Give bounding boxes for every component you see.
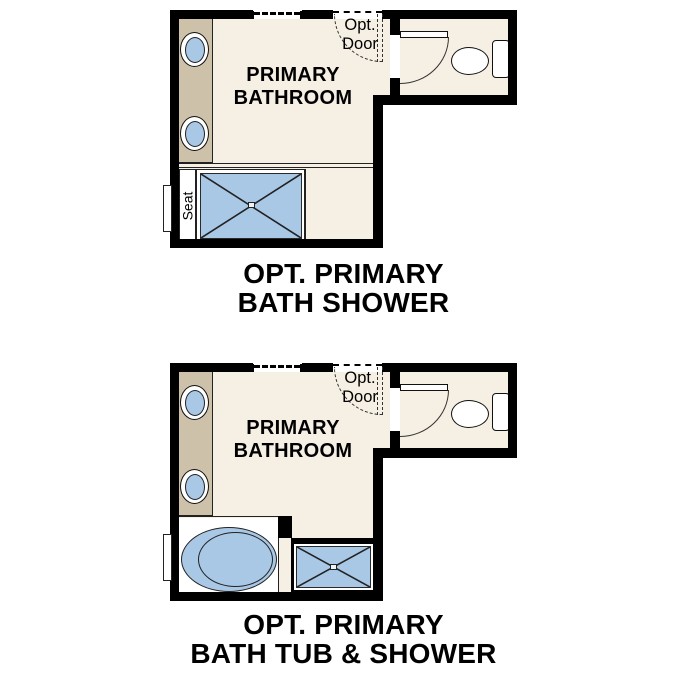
wall xyxy=(508,363,517,458)
shower-seat: Seat xyxy=(179,169,196,243)
floorplan-page: Seat PRIMARY BATHROOM Opt. Door xyxy=(0,0,687,687)
vanity-edge-line xyxy=(179,516,278,517)
window-icon xyxy=(163,185,172,232)
room-label: PRIMARY BATHROOM xyxy=(188,64,398,110)
room-label-line1: PRIMARY xyxy=(188,64,398,87)
room-label-line2: BATHROOM xyxy=(188,440,398,463)
shower-drain-icon xyxy=(248,202,255,208)
wall xyxy=(302,363,333,372)
wall xyxy=(170,239,383,248)
wall xyxy=(170,363,253,372)
sink-icon xyxy=(180,385,209,420)
toilet-room-wall xyxy=(390,363,400,388)
optional-door-opening-dashed xyxy=(333,11,382,13)
plan-title-bath-tub-shower: OPT. PRIMARY BATH TUB & SHOWER xyxy=(0,610,687,668)
title-line2: BATH SHOWER xyxy=(0,288,687,317)
cased-opening-dashed xyxy=(254,12,300,15)
shower-pan xyxy=(200,173,302,239)
shower-drain-icon xyxy=(330,564,337,570)
opt-door-label: Opt. Door xyxy=(336,16,384,53)
sink-icon xyxy=(180,116,209,151)
opt-door-line2: Door xyxy=(336,388,384,407)
alcove-edge-line xyxy=(278,538,279,592)
wall xyxy=(382,10,517,19)
door-leaf xyxy=(400,384,448,391)
title-line2: BATH TUB & SHOWER xyxy=(0,639,687,668)
wall xyxy=(508,10,517,105)
room-label-line2: BATHROOM xyxy=(188,87,398,110)
sink-basin xyxy=(185,474,205,500)
opt-door-line1: Opt. xyxy=(336,369,384,388)
seat-label: Seat xyxy=(180,192,196,221)
room-label: PRIMARY BATHROOM xyxy=(188,417,398,463)
wall xyxy=(170,592,383,601)
door-leaf xyxy=(400,31,448,38)
opt-door-label: Opt. Door xyxy=(336,369,384,406)
room-label-line1: PRIMARY xyxy=(188,417,398,440)
opt-door-line1: Opt. xyxy=(336,16,384,35)
wall xyxy=(373,448,383,601)
title-line1: OPT. PRIMARY xyxy=(0,259,687,288)
opt-door-line2: Door xyxy=(336,35,384,54)
opening-tick xyxy=(300,364,303,372)
sink-basin xyxy=(185,121,205,147)
shower-pan xyxy=(296,546,371,588)
sink-basin xyxy=(185,37,205,63)
tub-stub-wall xyxy=(278,516,292,538)
sink-icon xyxy=(180,469,209,504)
sink-basin xyxy=(185,390,205,416)
toilet-room-wall xyxy=(390,10,400,35)
wall xyxy=(382,363,517,372)
floorplan-bath-tub-shower: PRIMARY BATHROOM Opt. Door xyxy=(170,363,517,601)
plan-title-bath-shower: OPT. PRIMARY BATH SHOWER xyxy=(0,259,687,317)
shower-glass-line xyxy=(305,169,306,239)
vanity-edge-line xyxy=(179,163,373,164)
vanity-edge-line xyxy=(179,167,373,168)
title-line1: OPT. PRIMARY xyxy=(0,610,687,639)
cased-opening-dashed xyxy=(254,365,300,368)
sink-icon xyxy=(180,32,209,67)
optional-door-opening-dashed xyxy=(333,364,382,366)
wall xyxy=(373,95,383,248)
wall xyxy=(302,10,333,19)
window-icon xyxy=(163,534,172,581)
wall xyxy=(170,10,253,19)
opening-tick xyxy=(300,11,303,19)
floorplan-bath-shower: Seat PRIMARY BATHROOM Opt. Door xyxy=(170,10,517,248)
bathtub-basin xyxy=(198,532,273,587)
